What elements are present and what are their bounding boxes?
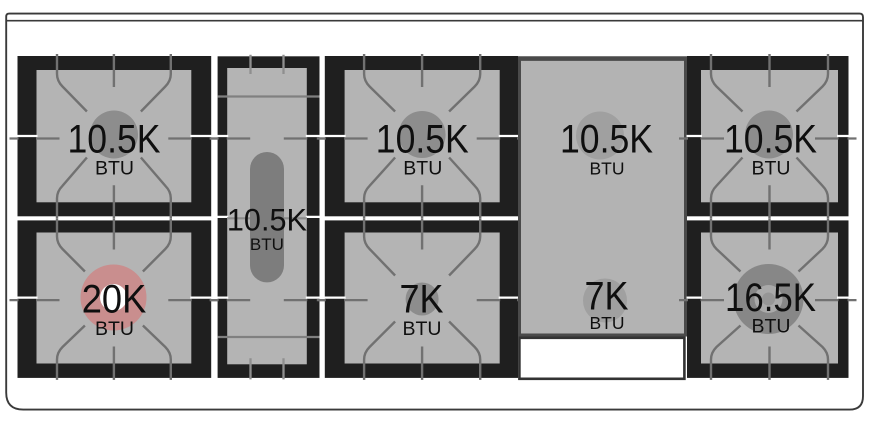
svg-text:BTU: BTU (95, 158, 134, 180)
svg-text:10.5K: 10.5K (68, 117, 161, 161)
svg-text:10.5K: 10.5K (724, 117, 817, 161)
svg-text:BTU: BTU (250, 235, 284, 254)
svg-text:10.5K: 10.5K (560, 117, 653, 161)
svg-text:20K: 20K (82, 278, 147, 322)
svg-text:16.5K: 16.5K (725, 276, 816, 320)
svg-text:BTU: BTU (403, 158, 442, 180)
svg-text:10.5K: 10.5K (376, 117, 469, 161)
svg-text:BTU: BTU (752, 158, 791, 180)
svg-text:BTU: BTU (95, 318, 134, 340)
svg-text:10.5K: 10.5K (227, 201, 307, 237)
svg-text:BTU: BTU (403, 318, 442, 340)
svg-text:BTU: BTU (590, 313, 625, 333)
svg-text:BTU: BTU (752, 316, 791, 338)
svg-text:7K: 7K (585, 275, 629, 319)
svg-text:BTU: BTU (590, 159, 625, 179)
svg-text:7K: 7K (400, 278, 444, 322)
